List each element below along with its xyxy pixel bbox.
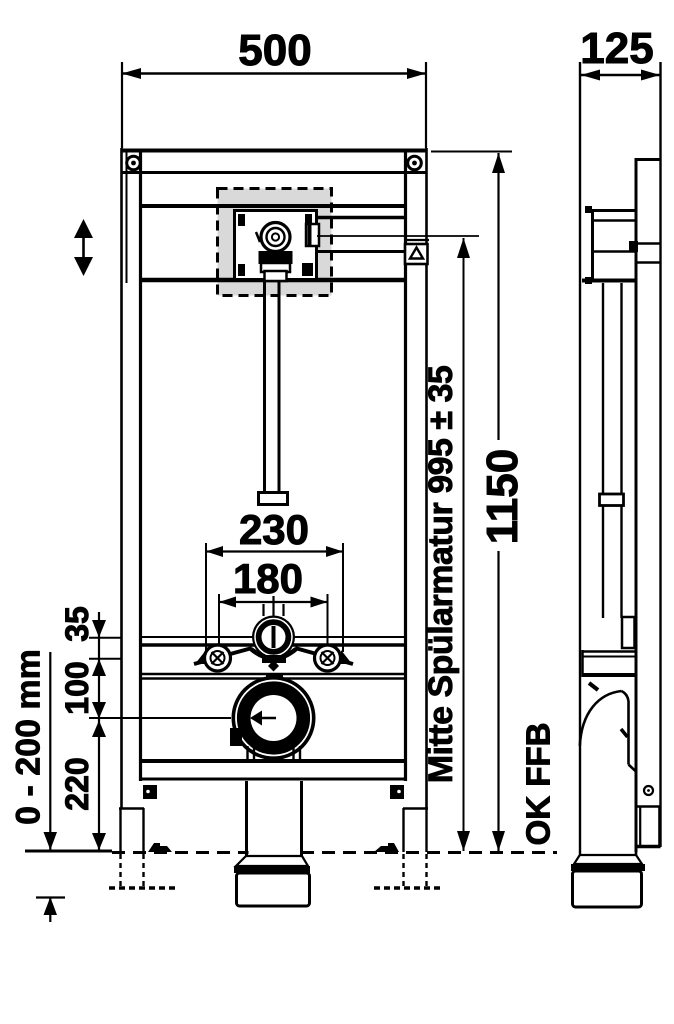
svg-text:35: 35 bbox=[59, 606, 95, 642]
svg-text:100: 100 bbox=[59, 661, 95, 714]
svg-text:0 - 200 mm: 0 - 200 mm bbox=[10, 649, 48, 825]
svg-text:500: 500 bbox=[238, 26, 311, 75]
svg-text:230: 230 bbox=[239, 506, 309, 553]
svg-text:180: 180 bbox=[233, 555, 303, 602]
svg-text:Mitte Spülarmatur 995 ± 35: Mitte Spülarmatur 995 ± 35 bbox=[422, 366, 460, 784]
svg-text:1150: 1150 bbox=[478, 449, 527, 544]
svg-text:125: 125 bbox=[580, 24, 653, 73]
svg-text:220: 220 bbox=[59, 757, 95, 810]
svg-text:OK FFB: OK FFB bbox=[520, 723, 557, 846]
